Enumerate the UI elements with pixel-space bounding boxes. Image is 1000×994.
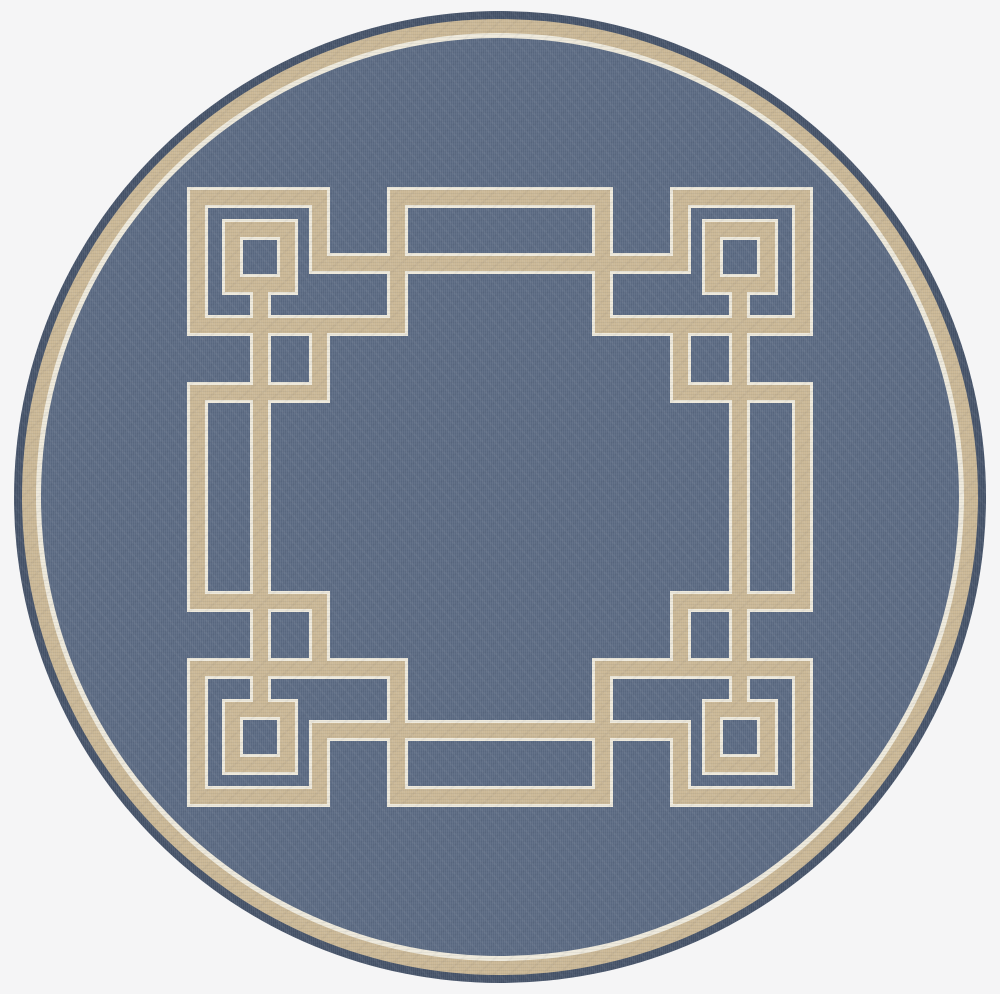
pattern-band-drop-right-top — [595, 190, 610, 333]
pattern-band-cross-line-top — [312, 256, 688, 271]
pattern-band-bottom-line-right — [673, 789, 810, 804]
pattern-band-notch-left-top — [312, 190, 327, 271]
pattern-band-square-bl-left — [225, 702, 240, 772]
pattern-band-square-br-left — [705, 702, 720, 772]
pattern-band-shelf-top-left — [190, 318, 405, 333]
pattern-band-notch-left-bottom — [312, 723, 327, 804]
pattern-band-square-tr-left — [705, 222, 720, 292]
pattern-band-drop-left-bottom — [390, 661, 405, 804]
pattern-band-step-left-bottom — [312, 594, 327, 676]
pattern-band-step-left-top — [312, 318, 327, 400]
pattern-band-step-right-bottom — [673, 594, 688, 676]
pattern-band-outer-left-upper — [190, 190, 205, 333]
pattern-band-drop-left-top — [390, 190, 405, 333]
pattern-band-drop-right-bottom — [595, 661, 610, 804]
pattern-band-spine-left — [253, 292, 268, 702]
pattern-band-outer-left-middle — [190, 385, 205, 609]
pattern-band-top-line-right — [673, 190, 810, 205]
pattern-band-square-br-right — [760, 702, 775, 772]
pattern-band-outer-right-middle — [795, 385, 810, 609]
pattern-band-shelf-bottom-left — [190, 661, 405, 676]
pattern-band-cross-line-bottom — [312, 723, 688, 738]
pattern-band-step-right-top — [673, 318, 688, 400]
pattern-band-outer-right-upper — [795, 190, 810, 333]
pattern-band-shelf-top-right — [595, 318, 810, 333]
pattern-band-top-line-left — [190, 190, 327, 205]
rug-product-photo — [0, 0, 1000, 994]
pattern-band-notch-right-bottom — [673, 723, 688, 804]
pattern-band-outer-right-lower — [795, 661, 810, 804]
pattern-band-bottom-line-center — [390, 789, 610, 804]
pattern-band-square-tr-right — [760, 222, 775, 292]
pattern-band-shelf-bottom-right — [595, 661, 810, 676]
pattern-band-top-line-center — [390, 190, 610, 205]
pattern-band-bottom-line-left — [190, 789, 327, 804]
pattern-band-square-tl-right — [280, 222, 295, 292]
pattern-band-outer-left-lower — [190, 661, 205, 804]
pattern-band-square-bl-right — [280, 702, 295, 772]
pattern-band-spine-right — [732, 292, 747, 702]
pattern-band-square-tl-left — [225, 222, 240, 292]
rug-ring-field — [41, 38, 959, 956]
pattern-band-notch-right-top — [673, 190, 688, 271]
